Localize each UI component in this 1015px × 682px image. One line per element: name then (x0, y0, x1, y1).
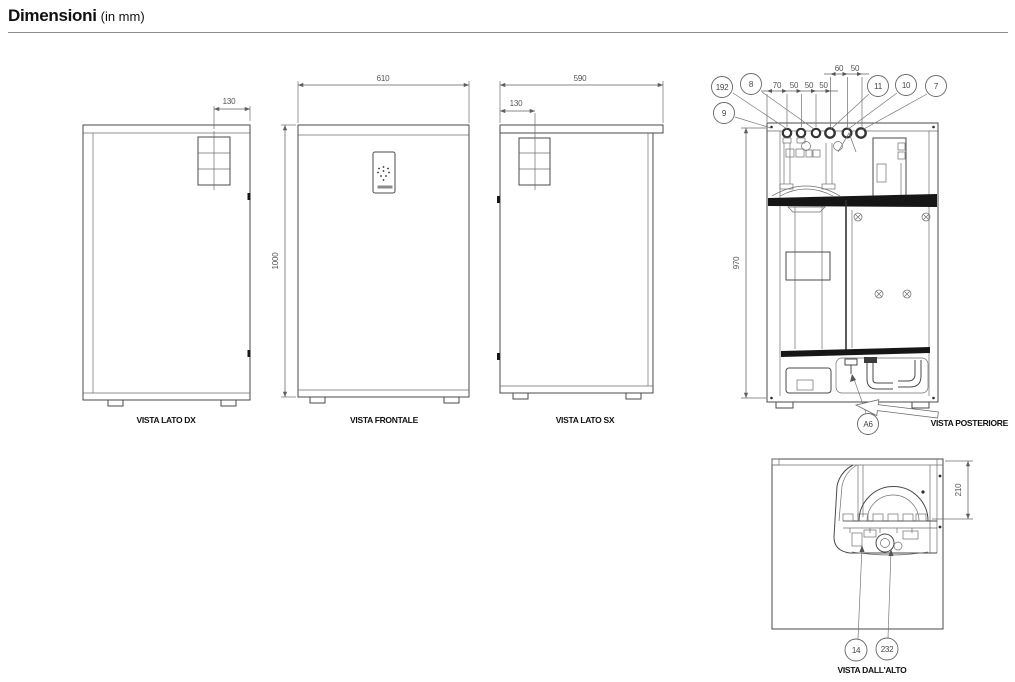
lato-dx-label: VISTA LATO DX (136, 415, 196, 425)
chain-50a: 50 (790, 81, 799, 90)
technical-drawing: 130 VISTA LATO DX (0, 0, 1015, 682)
dall-alto-footprint (772, 459, 943, 629)
hinge-mark (497, 353, 500, 360)
posteriore-feet (776, 402, 929, 408)
posteriore-mid-section (786, 200, 930, 352)
svg-text:10: 10 (902, 81, 911, 90)
posteriore-band-bottom (781, 347, 930, 357)
chain-50c: 50 (819, 81, 828, 90)
hinge-mark (497, 196, 500, 203)
lato-sx-dim-130: 130 (500, 99, 535, 111)
callout-11: 11 (868, 76, 889, 97)
lato-sx-dim-590: 590 (500, 74, 663, 123)
frontale-body (298, 125, 469, 397)
callout-7: 7 (926, 76, 947, 97)
panel-screw (854, 213, 862, 221)
chain-50d: 50 (851, 64, 860, 73)
frontale-feet (310, 397, 459, 403)
hinge-mark (248, 350, 251, 357)
dim-590-text: 590 (574, 74, 587, 83)
lato-sx-label: VISTA LATO SX (556, 415, 615, 425)
dall-alto-arch (859, 487, 928, 521)
view-posteriore: 970 70 50 50 50 (712, 64, 1009, 435)
svg-text:192: 192 (716, 83, 729, 92)
callout-10: 10 (896, 75, 917, 96)
dall-alto-pipe-rail (843, 514, 937, 528)
dim-130-sx-text: 130 (510, 99, 523, 108)
view-frontale: 610 1000 VISTA FRONTALE (271, 74, 469, 425)
dall-alto-callouts: 14 232 (845, 545, 898, 661)
posteriore-dim-970: 970 (732, 128, 766, 398)
posteriore-band-top (768, 194, 937, 207)
svg-text:14: 14 (852, 646, 861, 655)
panel-screw (903, 290, 911, 298)
dim-970-text: 970 (732, 256, 741, 269)
lato-dx-dim-130: 130 (214, 97, 250, 129)
posteriore-hydraulics (772, 133, 856, 196)
svg-text:11: 11 (874, 82, 883, 91)
chain-60: 60 (835, 64, 844, 73)
dall-alto-unit-outline (834, 465, 937, 553)
panel-logo (378, 186, 393, 189)
dim-1000-text: 1000 (271, 252, 280, 270)
svg-text:232: 232 (881, 645, 894, 654)
view-lato-sx: 590 130 VISTA LATO SX (497, 74, 663, 425)
lato-dx-feet (108, 400, 236, 406)
dim-130-text: 130 (223, 97, 236, 106)
frontale-control-panel (373, 152, 395, 193)
lato-sx-body (497, 125, 663, 393)
posteriore-label: VISTA POSTERIORE (931, 418, 1009, 428)
dall-alto-label: VISTA DALL'ALTO (838, 665, 908, 675)
chain-50b: 50 (805, 81, 814, 90)
callout-192: 192 (712, 77, 733, 98)
callout-232: 232 (876, 638, 898, 660)
callout-9: 9 (714, 103, 735, 124)
panel-screw (875, 290, 883, 298)
view-dall-alto: 210 14 232 VISTA DALL'ALTO (772, 459, 973, 675)
hinge-mark (248, 193, 251, 200)
posteriore-frame (767, 123, 938, 402)
callout-14: 14 (845, 639, 867, 661)
dimension-drawing-page: Dimensioni(in mm) (0, 0, 1015, 682)
lato-sx-feet (513, 393, 641, 399)
dim-610-text: 610 (377, 74, 390, 83)
posteriore-pipe-fittings (783, 128, 866, 137)
view-lato-dx: 130 VISTA LATO DX (83, 97, 251, 425)
pipe-flange (864, 357, 877, 363)
dall-alto-dim-210: 210 (932, 461, 973, 519)
callout-8: 8 (741, 74, 762, 95)
lato-dx-connection-grid (198, 131, 230, 190)
frontale-label: VISTA FRONTALE (350, 415, 419, 425)
svg-text:A6: A6 (863, 420, 873, 429)
lato-dx-body (83, 125, 251, 400)
frontale-dim-1000: 1000 (271, 125, 296, 397)
frontale-dim-610: 610 (298, 74, 469, 123)
dim-210-text: 210 (954, 483, 963, 496)
chain-70: 70 (773, 81, 782, 90)
